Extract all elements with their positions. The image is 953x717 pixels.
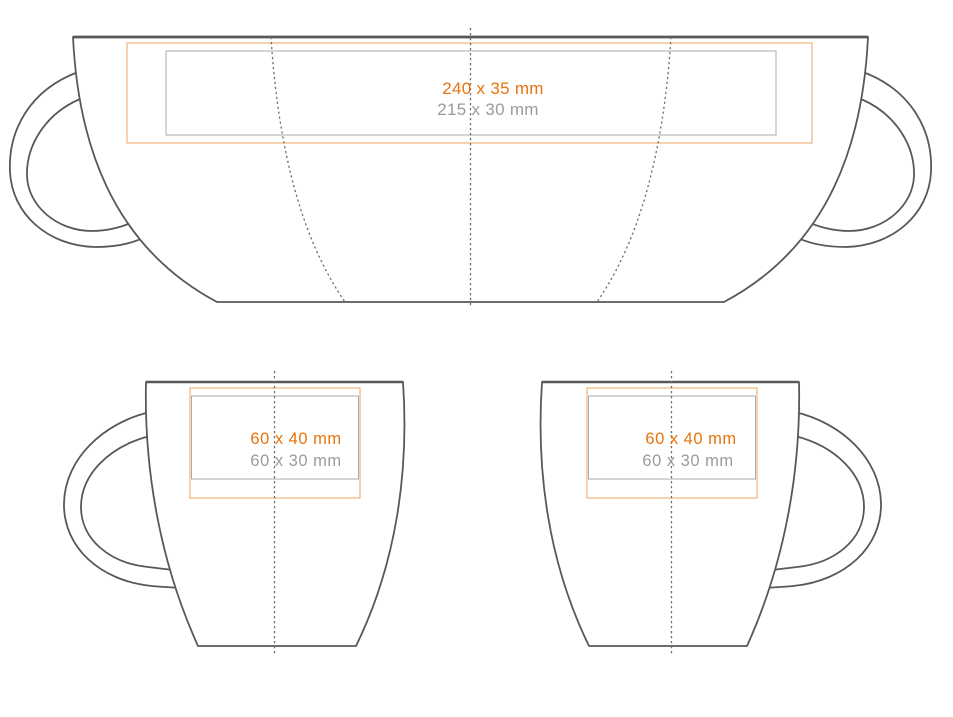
back-secondary-size-label: 60 x 30 mm — [642, 452, 733, 470]
diagram-svg: 240 x 35 mm 215 x 30 mm 60 x 40 mm 60 x … — [0, 0, 953, 717]
wrap-secondary-size-label: 215 x 30 mm — [437, 100, 539, 119]
front-primary-size-label: 60 x 40 mm — [250, 430, 341, 448]
back-primary-size-label: 60 x 40 mm — [645, 430, 736, 448]
front-secondary-size-label: 60 x 30 mm — [250, 452, 341, 470]
front-view — [64, 382, 404, 646]
mug-print-template-diagram: 240 x 35 mm 215 x 30 mm 60 x 40 mm 60 x … — [0, 0, 953, 717]
back-view — [541, 382, 881, 646]
wrap-primary-size-label: 240 x 35 mm — [442, 79, 544, 98]
back-mug-body-outline — [541, 382, 800, 646]
